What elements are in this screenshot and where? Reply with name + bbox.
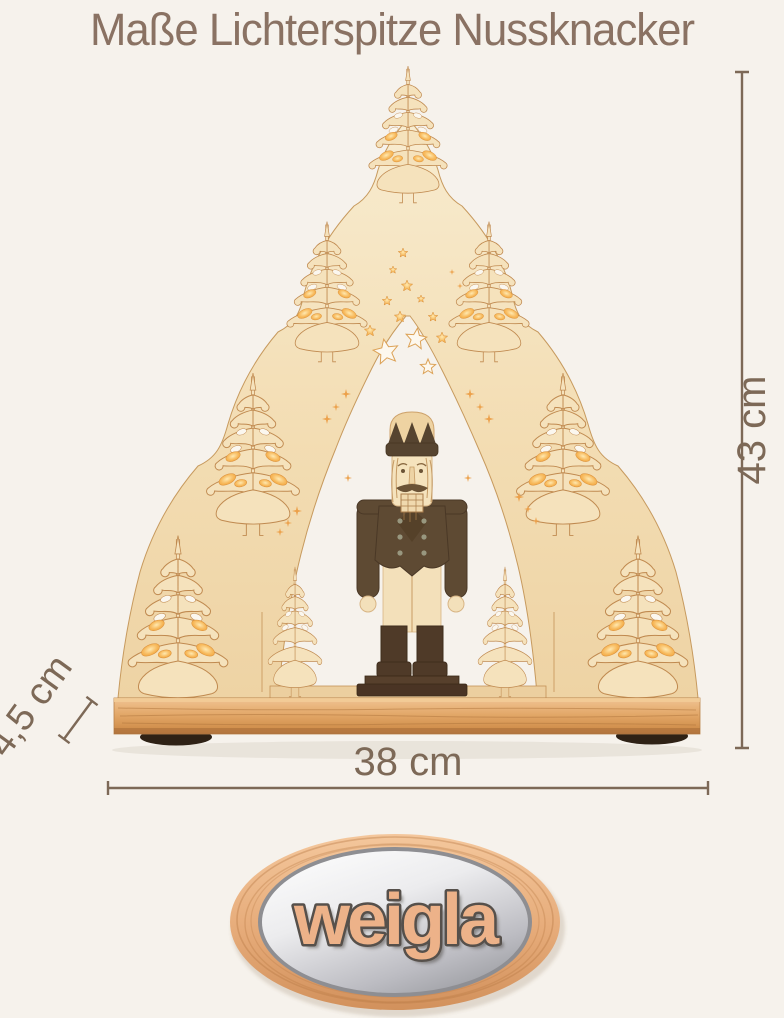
nutcracker-boot-left (381, 626, 407, 666)
product-illustration: 43 cm 38 cm 4,5 cm weigla weigla (0, 0, 784, 1018)
jacket-button (421, 534, 426, 539)
light-arch (112, 66, 702, 759)
cut-star (420, 359, 435, 374)
jacket-button (397, 534, 402, 539)
height-label: 43 cm (730, 376, 774, 485)
jacket-button (397, 518, 402, 523)
nutcracker-figure (357, 412, 467, 696)
depth-dimension-line (58, 697, 97, 743)
nutcracker-crown-zigzag (388, 422, 436, 444)
nutcracker-hand-left (360, 596, 376, 612)
logo-text: weigla (293, 880, 500, 960)
nutcracker-eye-left (401, 469, 405, 473)
nutcracker-nose (409, 467, 415, 484)
sparkle-star (464, 474, 472, 482)
nutcracker-mouth-grid (401, 494, 423, 512)
jacket-button (397, 550, 402, 555)
sparkle-star (344, 474, 352, 482)
nutcracker-foot-right (413, 662, 447, 677)
nutcracker-foot-left (377, 662, 411, 677)
brand-logo: weigla weigla (230, 834, 565, 1017)
depth-label: 4,5 cm (0, 647, 81, 764)
nutcracker-hand-right (448, 596, 464, 612)
nutcracker-boot-right (417, 626, 443, 666)
jacket-button (421, 550, 426, 555)
width-label: 38 cm (354, 740, 463, 784)
nutcracker-eye-right (419, 469, 423, 473)
nutcracker-stand (357, 684, 467, 696)
jacket-button (421, 518, 426, 523)
carved-tree (369, 66, 447, 203)
wood-base (114, 698, 700, 734)
nutcracker-hat-brim (386, 443, 438, 456)
product-dimension-sheet: Maße Lichterspitze Nussknacker (0, 0, 784, 1018)
